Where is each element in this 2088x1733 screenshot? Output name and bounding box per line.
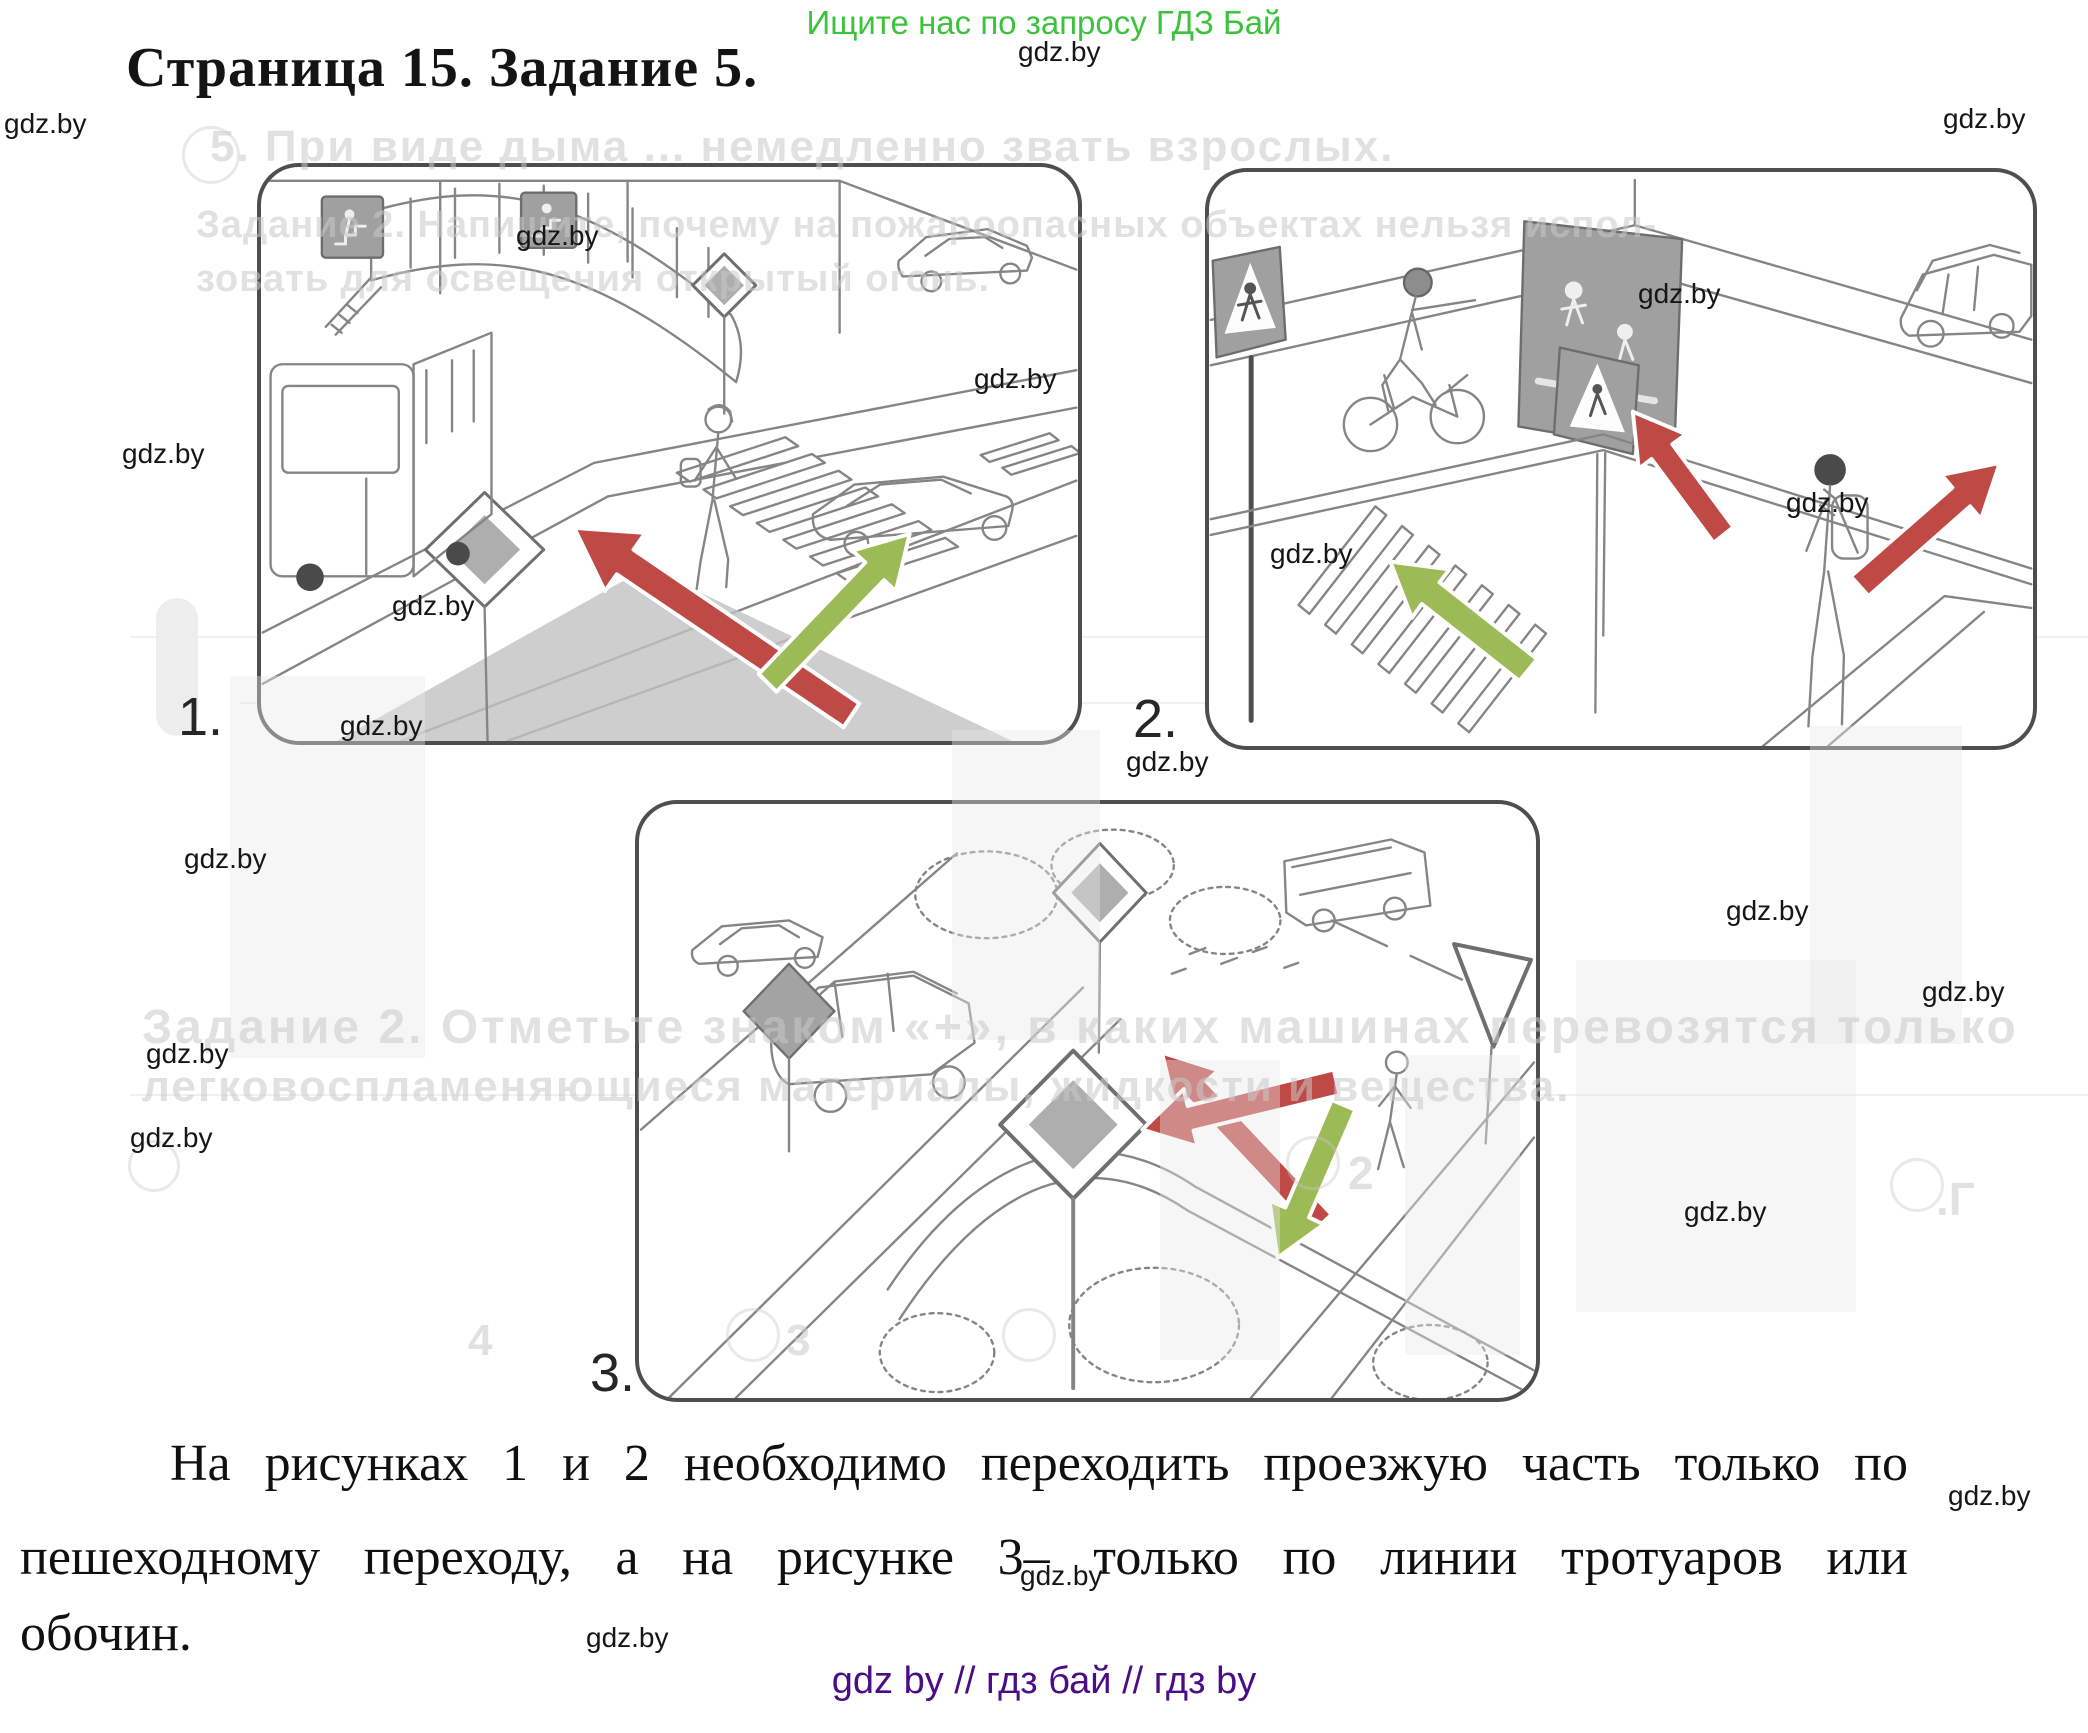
motorcyclist <box>1344 269 1484 451</box>
bus <box>271 333 492 591</box>
figure-2-illustration <box>1209 172 2033 746</box>
figure-1-street-scene <box>257 163 1082 745</box>
car <box>692 920 823 975</box>
van <box>1284 840 1430 932</box>
bleed-through: 5. При виде дыма ... немедленно звать вз… <box>210 122 1394 172</box>
bleed-through <box>952 730 1100 1040</box>
watermark: gdz.by <box>1638 278 1721 310</box>
page-title: Страница 15. Задание 5. <box>126 36 758 100</box>
pedestrian <box>681 405 736 589</box>
bleed-through: Задание 2. Напишите, почему на пожароопа… <box>196 204 1657 247</box>
bleed-through <box>726 1308 780 1362</box>
scanned-workbook-page: Ищите нас по запросу ГДЗ Бай Страница 15… <box>0 0 2088 1733</box>
red-arrow-icon <box>1633 412 1734 543</box>
watermark: gdz.by <box>1684 1196 1767 1228</box>
bleed-through: 3 <box>786 1316 810 1366</box>
watermark: gdz.by <box>392 590 475 622</box>
watermark: gdz.by <box>1943 103 2026 135</box>
bleed-through: Задание 2. Отметьте знаком «+», в каких … <box>142 1000 2019 1055</box>
bleed-through <box>182 126 240 184</box>
sign-back-icon <box>744 964 835 1151</box>
figure-1-label: 1. <box>178 686 223 748</box>
watermark: gdz.by <box>130 1122 213 1154</box>
answer-line-3: обочин. <box>20 1604 192 1663</box>
watermark: gdz.by <box>1726 895 1809 927</box>
bleed-through: зовать для освещения открытый огонь. <box>196 258 990 301</box>
watermark: gdz.by <box>1948 1480 2031 1512</box>
watermark: gdz.by <box>340 710 423 742</box>
figure-2-label: 2. <box>1133 688 1178 750</box>
watermark: gdz.by <box>974 363 1057 395</box>
red-arrow-icon <box>1851 463 2000 596</box>
figure-3-label: 3. <box>590 1342 635 1404</box>
bleed-through <box>1286 1136 1340 1190</box>
pedestrian-crossing-sign-icon <box>1554 348 1639 713</box>
car <box>1901 245 2032 347</box>
footer-site-links: gdz by // гдз бай // гдз by <box>0 1660 2088 1703</box>
watermark: gdz.by <box>1270 538 1353 570</box>
bleed-through <box>1002 1308 1056 1362</box>
answer-line-1: На рисунках 1 и 2 необходимо переходить … <box>170 1434 1908 1493</box>
watermark: gdz.by <box>1126 746 1209 778</box>
watermark: gdz.by <box>516 220 599 252</box>
bleed-through: 2 <box>1348 1146 1374 1200</box>
watermark: gdz.by <box>1922 976 2005 1008</box>
bleed-through: 4 <box>468 1316 492 1366</box>
watermark: gdz.by <box>4 108 87 140</box>
bleed-through <box>1890 1158 1944 1212</box>
watermark: gdz.by <box>146 1038 229 1070</box>
watermark: gdz.by <box>122 438 205 470</box>
figure-2-intersection-scene <box>1205 168 2037 750</box>
watermark: gdz.by <box>586 1622 669 1654</box>
pedestrian-crossing-sign-icon <box>1213 247 1286 720</box>
bleed-through: легковоспламеняющиеся материалы, жидкост… <box>142 1062 1570 1112</box>
watermark: gdz.by <box>184 843 267 875</box>
answer-line-2: пешеходному переходу, а на рисунке 3– то… <box>20 1528 1908 1587</box>
watermark: gdz.by <box>1786 487 1869 519</box>
figure-1-illustration <box>261 167 1078 741</box>
